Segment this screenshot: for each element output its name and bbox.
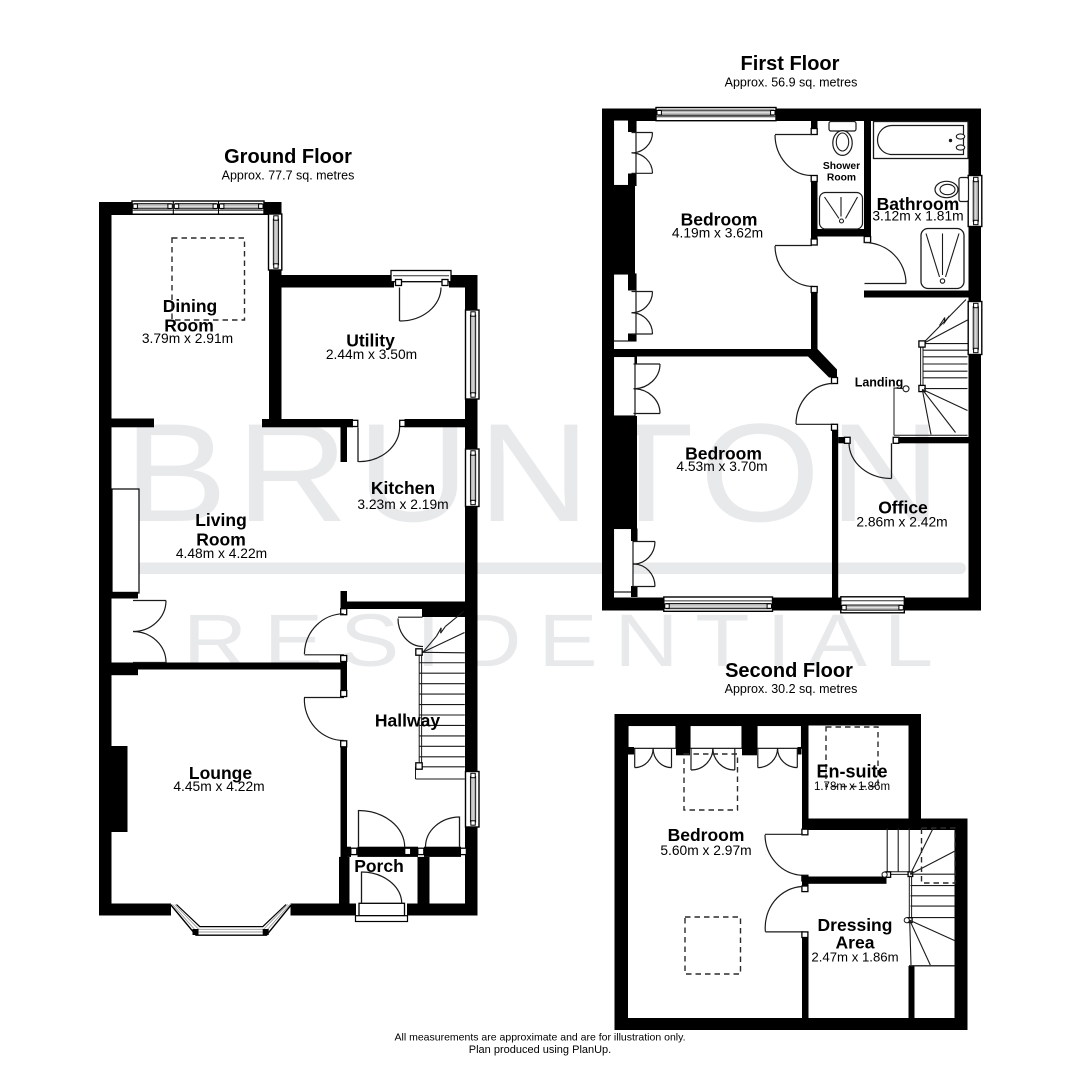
svg-text:2.47m x 1.86m: 2.47m x 1.86m (811, 950, 898, 965)
svg-text:4.48m x 4.22m: 4.48m x 4.22m (176, 546, 267, 561)
svg-text:All measurements are approxima: All measurements are approximate and are… (394, 1032, 685, 1044)
svg-text:Approx. 30.2 sq. metres: Approx. 30.2 sq. metres (725, 682, 858, 696)
svg-text:4.19m x 3.62m: 4.19m x 3.62m (672, 226, 763, 241)
svg-text:5.60m x 2.97m: 5.60m x 2.97m (660, 843, 751, 858)
svg-text:Dining: Dining (163, 296, 217, 316)
svg-text:4.45m x 4.22m: 4.45m x 4.22m (173, 779, 264, 794)
svg-text:1.78m x 1.86m: 1.78m x 1.86m (814, 781, 890, 793)
svg-text:Ground Floor: Ground Floor (224, 146, 352, 168)
svg-text:BRUNTON: BRUNTON (124, 394, 950, 551)
svg-text:Shower: Shower (823, 161, 860, 172)
svg-text:Landing: Landing (855, 376, 904, 390)
svg-text:Bedroom: Bedroom (668, 825, 745, 845)
svg-text:Plan produced using PlanUp.: Plan produced using PlanUp. (469, 1044, 611, 1056)
svg-text:3.23m x 2.19m: 3.23m x 2.19m (357, 497, 448, 512)
svg-text:Kitchen: Kitchen (371, 478, 435, 498)
svg-text:Living: Living (195, 510, 247, 530)
svg-text:3.79m x 2.91m: 3.79m x 2.91m (142, 331, 233, 346)
svg-text:2.44m x 3.50m: 2.44m x 3.50m (326, 347, 417, 362)
svg-text:Porch: Porch (354, 856, 404, 876)
svg-text:En-suite: En-suite (816, 762, 887, 782)
svg-text:4.53m x 3.70m: 4.53m x 3.70m (676, 459, 767, 474)
svg-text:Hallway: Hallway (375, 711, 440, 731)
svg-text:3.12m x 1.81m: 3.12m x 1.81m (872, 209, 963, 224)
svg-text:Approx. 56.9 sq. metres: Approx. 56.9 sq. metres (725, 76, 858, 90)
svg-text:First Floor: First Floor (741, 53, 840, 75)
svg-text:Approx. 77.7 sq. metres: Approx. 77.7 sq. metres (222, 169, 355, 183)
svg-text:Second Floor: Second Floor (725, 660, 853, 682)
svg-text:Room: Room (827, 173, 856, 184)
svg-text:2.86m x 2.42m: 2.86m x 2.42m (856, 515, 947, 530)
